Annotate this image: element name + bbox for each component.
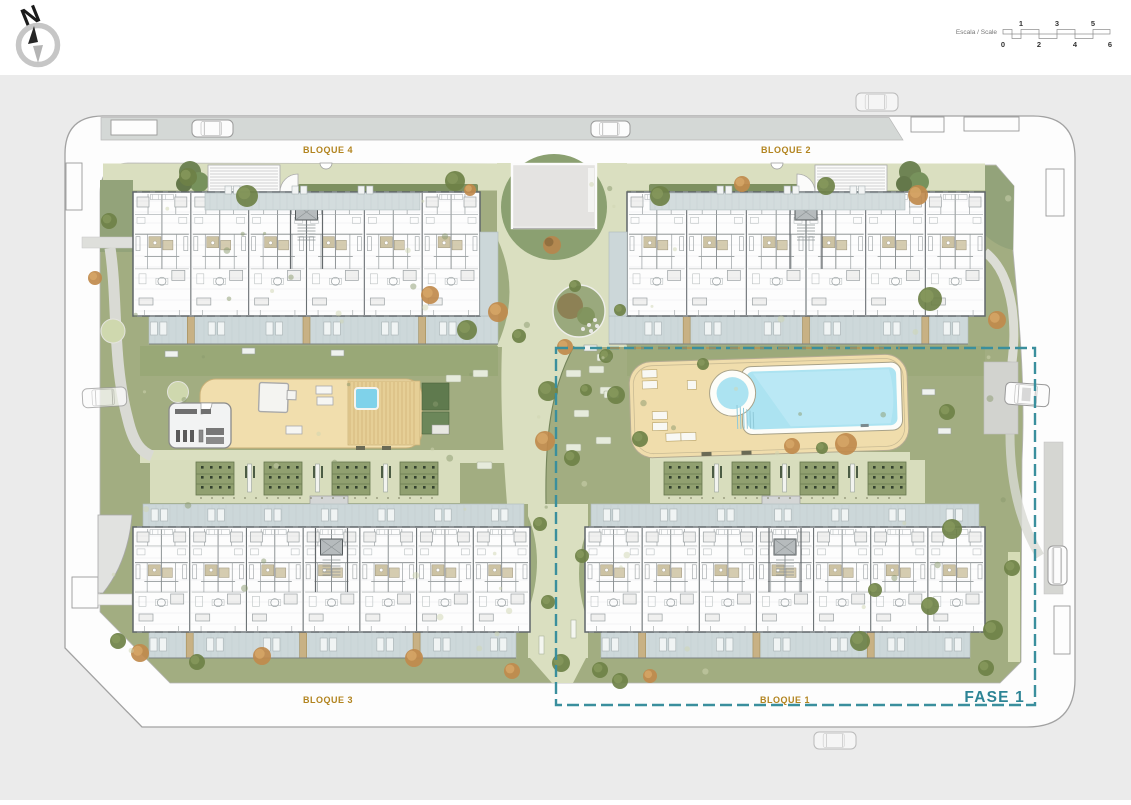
svg-text:BLOQUE 3: BLOQUE 3 [303, 695, 353, 705]
svg-text:BLOQUE 1: BLOQUE 1 [760, 695, 810, 705]
svg-text:FASE 1: FASE 1 [964, 689, 1025, 706]
svg-text:1: 1 [1019, 19, 1023, 28]
svg-text:5: 5 [1091, 19, 1095, 28]
svg-text:BLOQUE 2: BLOQUE 2 [761, 145, 811, 155]
svg-text:2: 2 [1037, 40, 1041, 49]
svg-text:BLOQUE 4: BLOQUE 4 [303, 145, 353, 155]
svg-text:Escala / Scale: Escala / Scale [956, 29, 998, 36]
svg-text:6: 6 [1108, 40, 1112, 49]
svg-text:0: 0 [1001, 40, 1005, 49]
svg-text:3: 3 [1055, 19, 1059, 28]
